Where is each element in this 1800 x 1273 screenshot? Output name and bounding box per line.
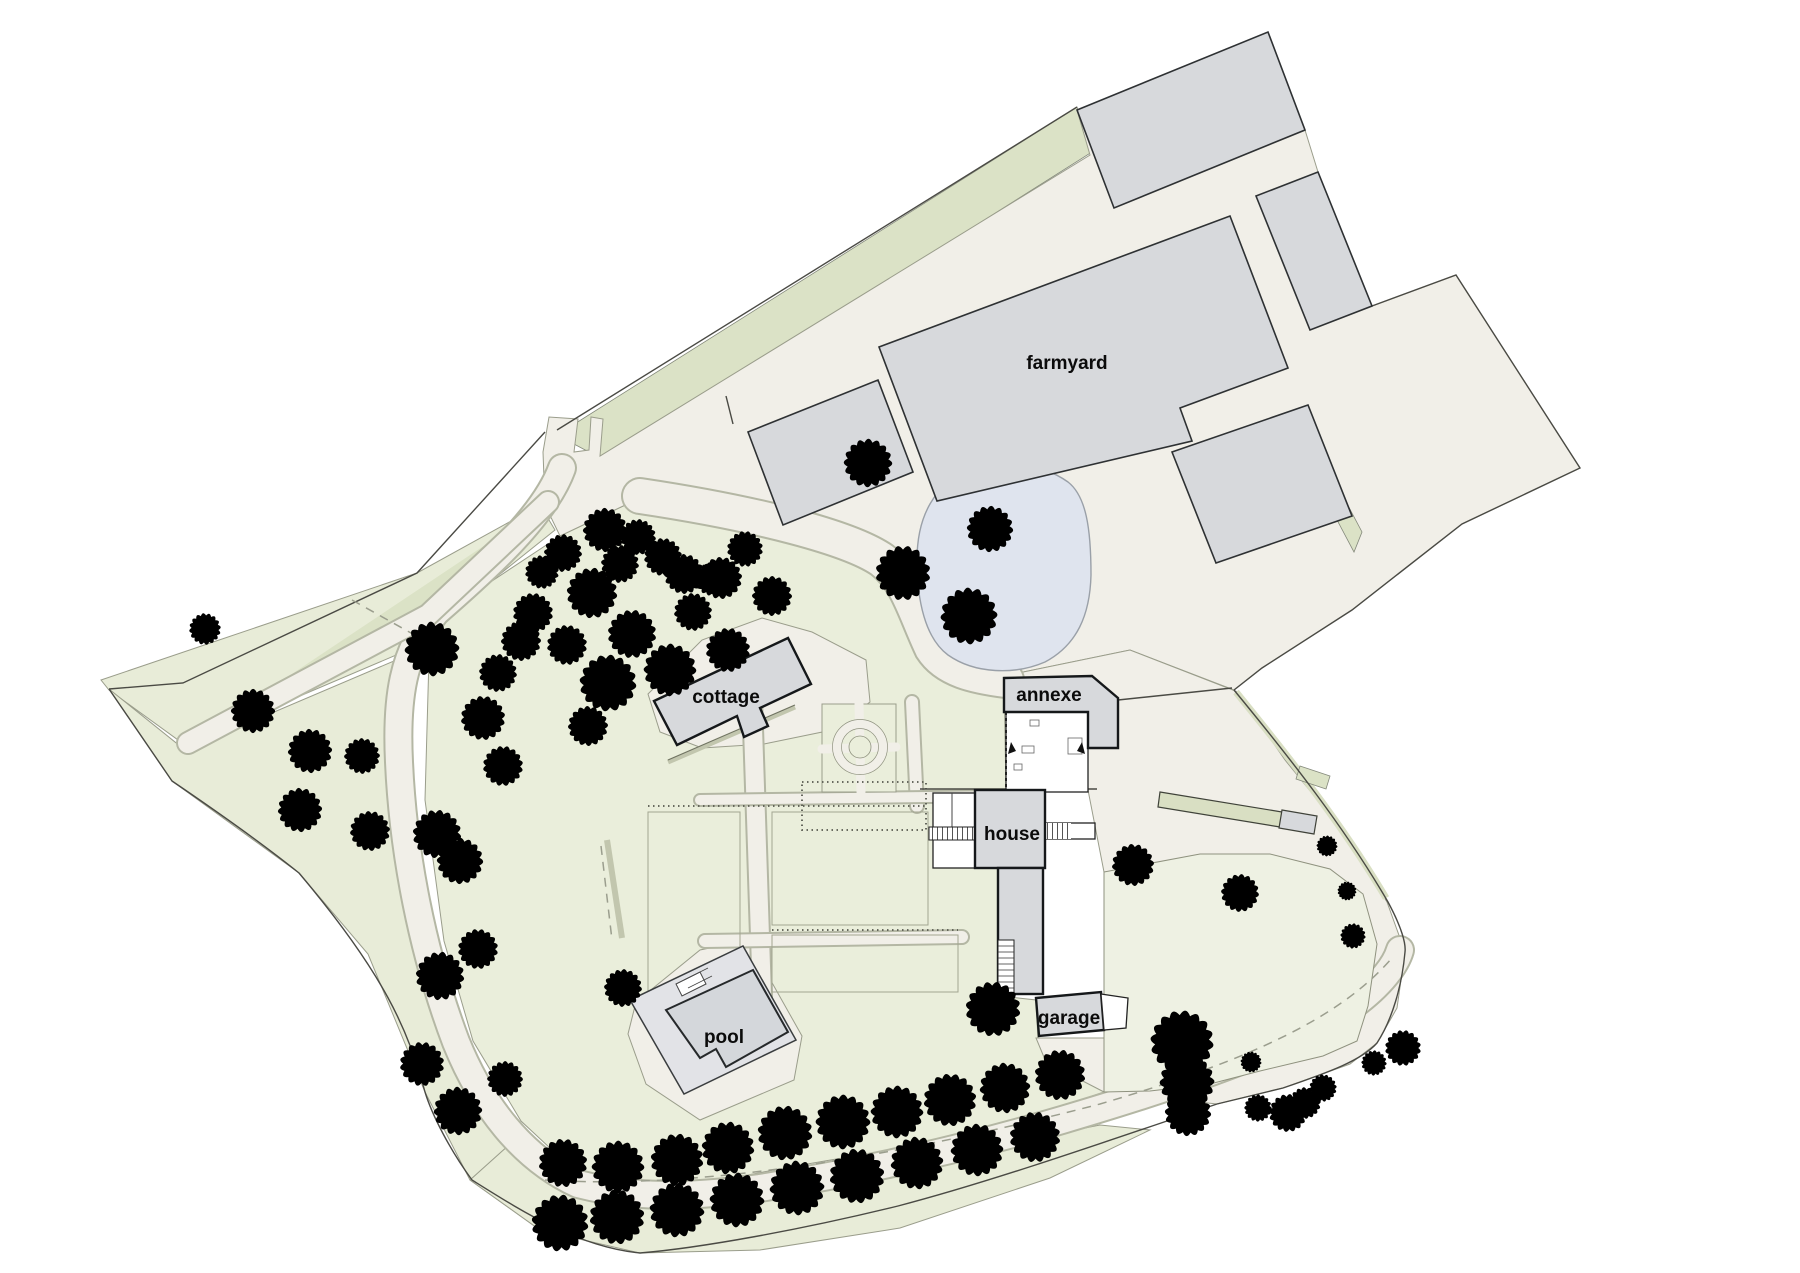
pool-label: pool [704,1027,744,1048]
tree [1378,1023,1428,1073]
house-west-hatch-wall [929,827,977,840]
lower-path [705,937,962,941]
garage-label: garage [1038,1008,1100,1029]
house-label: house [984,824,1040,845]
farmyard-label: farmyard [1026,353,1107,374]
garden-path-main [752,698,762,996]
annexe-courtyard [1006,712,1088,792]
site-plan-canvas: farmyard cottage annexe house garage poo… [0,0,1800,1273]
site-plan: farmyard cottage annexe house garage poo… [0,0,1800,1273]
parterre-garden [822,704,896,792]
annexe-label: annexe [1016,685,1081,706]
house-east-hatch [1045,823,1071,839]
garage-annex [1101,994,1128,1030]
cottage-label: cottage [692,687,760,708]
